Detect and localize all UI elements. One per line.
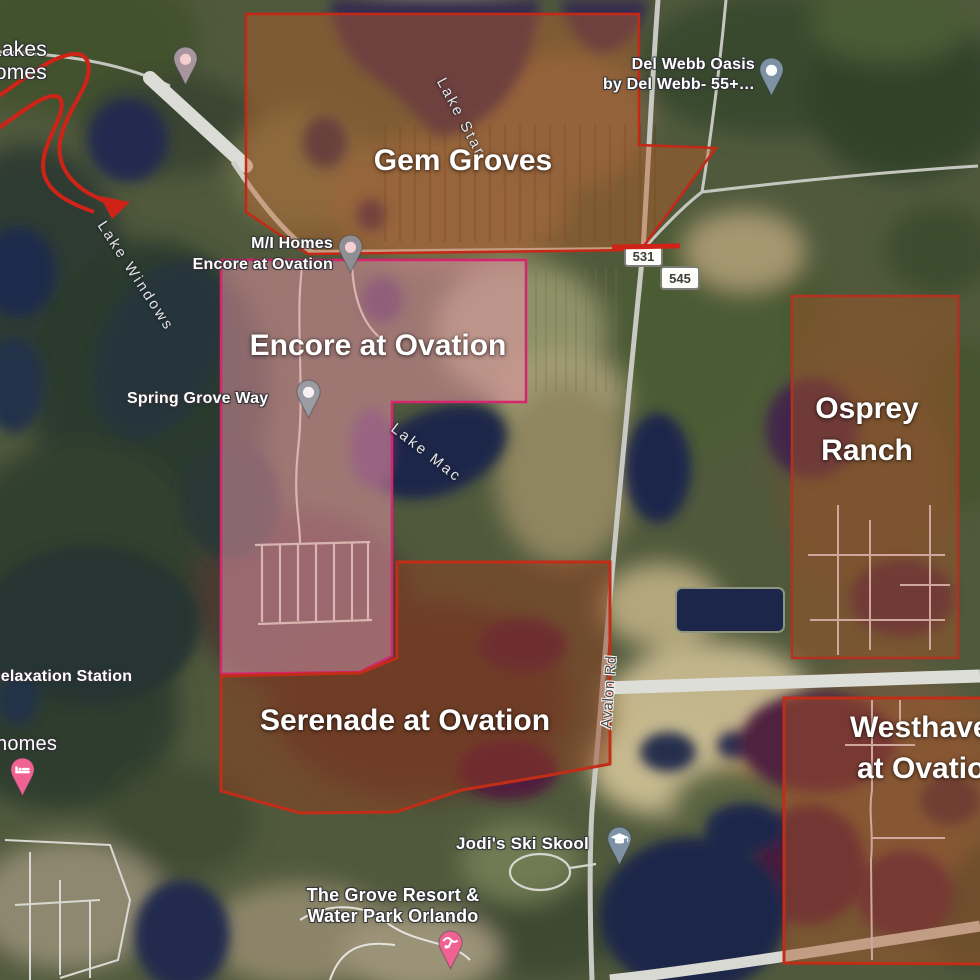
poi-homes-label[interactable]: homes [0, 733, 57, 756]
hotel-bed-pin-icon [9, 757, 36, 797]
poi-del-webb-label[interactable]: Del Webb Oasis by Del Webb- 55+… [495, 55, 755, 95]
poi-relaxation-station-label[interactable]: Relaxation Station [0, 668, 132, 686]
graduation-cap-pin-icon [606, 826, 633, 866]
hotel-pin[interactable] [9, 757, 36, 797]
poi-jodis-ski-skool-label[interactable]: Jodi's Ski Skool [456, 834, 589, 854]
gem-groves-label: Gem Groves [374, 141, 552, 181]
del-webb-pin[interactable] [758, 57, 785, 97]
westhaven-label: Westhaven at Ovation [850, 707, 980, 789]
route-shield-545: 545 [660, 266, 700, 290]
serenade-label: Serenade at Ovation [260, 701, 550, 741]
spring-grove-pin-icon [295, 379, 322, 419]
builder-pin-icon [172, 46, 199, 86]
waterpark-pin[interactable] [437, 930, 464, 970]
osprey-polygon [792, 296, 958, 658]
poi-grove-resort-label[interactable]: The Grove Resort & Water Park Orlando [307, 885, 480, 927]
school-pin[interactable] [606, 826, 633, 866]
del-webb-pin-icon [758, 57, 785, 97]
poi-lakes-homes-label[interactable]: Lakes omes [0, 38, 47, 84]
spring-grove-pin[interactable] [295, 379, 322, 419]
poi-mi-homes-label[interactable]: M/I Homes Encore at Ovation [133, 233, 333, 275]
builder-pin[interactable] [172, 46, 199, 86]
satellite-map[interactable]: 531 545 Lake Star Lake Windows Lake Mac … [0, 0, 980, 980]
mi-homes-pin-icon [337, 234, 364, 274]
encore-label: Encore at Ovation [250, 326, 507, 366]
mi-homes-pin[interactable] [337, 234, 364, 274]
water-slide-pin-icon [437, 930, 464, 970]
osprey-ranch-label: Osprey Ranch [815, 388, 918, 472]
poi-spring-grove-way-label[interactable]: Spring Grove Way [127, 390, 268, 408]
